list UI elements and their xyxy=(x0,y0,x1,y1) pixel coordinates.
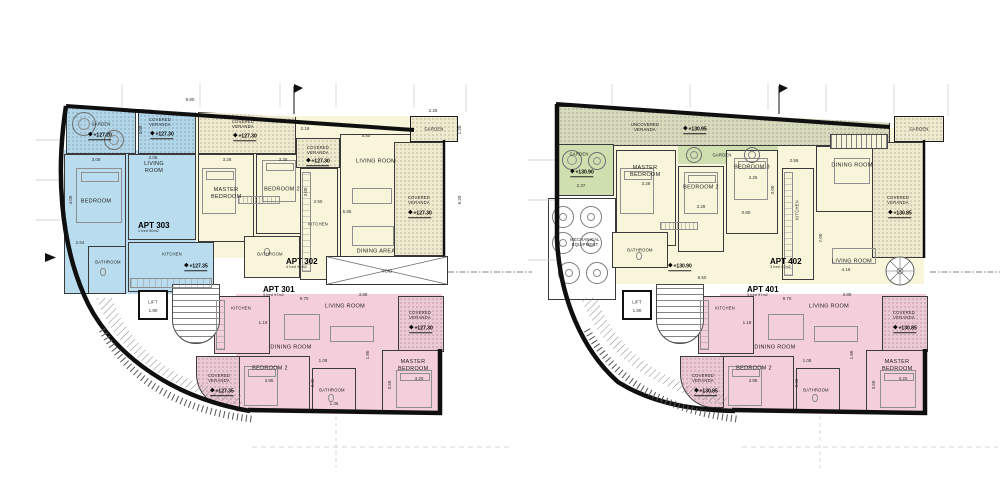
dimension-label: 1.80 xyxy=(633,309,642,314)
dining-table xyxy=(352,226,394,246)
apartment-label-303: APT 303 1 bed 50m2 xyxy=(138,222,170,234)
dimension-label: 1.80 xyxy=(366,351,371,360)
dining-table xyxy=(284,314,320,340)
level-marker-icon: ◆ xyxy=(694,389,698,395)
label-bathroom: BATHROOM xyxy=(319,387,344,392)
label-kitchen: KITCHEN xyxy=(715,305,735,310)
label-bathroom: BATHROOM xyxy=(257,251,282,256)
dimension-label: 3.25 xyxy=(279,158,288,163)
mechanical-unit-icon xyxy=(586,262,608,284)
label-covered-veranda: COVERED VERANDA xyxy=(884,195,912,206)
dimension-label: 9.70 xyxy=(300,297,309,302)
room-bathroom-blue xyxy=(88,246,126,294)
dimension-label: 1.18 xyxy=(259,321,268,326)
dimension-label: 9.80 xyxy=(186,98,195,103)
dimension-label: 3.08 xyxy=(92,158,101,163)
level-marker-icon: ◆ xyxy=(888,211,892,217)
level-marker-icon: ◆ xyxy=(88,133,92,139)
dimension-label: 3.20 xyxy=(415,377,424,382)
dimension-label: 3.85 xyxy=(265,379,274,384)
tree-icon xyxy=(744,147,760,163)
level-marker-icon: ◆ xyxy=(184,264,188,270)
room-covered-veranda-301-right xyxy=(398,296,444,352)
level-marker-icon: ◆ xyxy=(893,326,897,332)
level-marker-icon: ◆ xyxy=(408,211,412,217)
label-bedroom: BEDROOM xyxy=(81,199,112,206)
label-mechanical-equipment: MECHANICAL EQUIPMENT xyxy=(569,237,601,248)
level-marker-icon: ◆ xyxy=(233,134,237,140)
dimension-label: 3.45 xyxy=(795,379,800,388)
level-marker: ◆+130.85 xyxy=(888,210,911,218)
toilet xyxy=(100,268,106,276)
label-covered-veranda: COVERED VERANDA xyxy=(890,310,918,321)
label-kitchen: KITCHEN xyxy=(308,221,328,226)
dimension-label: 3.88 xyxy=(843,293,852,298)
label-dining-room: DINING ROOM xyxy=(831,163,872,170)
dimension-label: 2.18 xyxy=(301,127,310,132)
label-covered-veranda: COVERED VERANDA xyxy=(205,373,233,384)
apartment-label-401: APT 401 3 bed 97m2 xyxy=(747,286,779,298)
dimension-label: 7.00 xyxy=(819,234,824,243)
dimension-label: 5.85 xyxy=(343,210,352,215)
dimension-label: 0.80 xyxy=(742,211,751,216)
dimension-label: 6.20 xyxy=(458,196,463,205)
wardrobe xyxy=(660,222,698,230)
dimension-label: 8.50 xyxy=(698,276,707,281)
level-marker: ◆+130.85 xyxy=(694,388,717,396)
level-marker-icon: ◆ xyxy=(570,170,574,176)
lift xyxy=(622,290,652,320)
sofa xyxy=(352,188,392,204)
dimension-label: 3.00 xyxy=(771,186,776,195)
label-living-room: LIVING ROOM xyxy=(832,259,872,266)
label-garden: GARDEN xyxy=(424,126,443,131)
dimension-label: 1.20 xyxy=(458,126,463,135)
section-flag-icon xyxy=(294,84,303,114)
dimension-label: 1.80 xyxy=(149,309,158,314)
tree-icon xyxy=(588,152,606,170)
dimension-label: 3.45 xyxy=(311,379,316,388)
level-marker: ◆+130.90 xyxy=(668,263,691,271)
sofa xyxy=(330,326,374,342)
label-master-bedroom: MASTER BEDROOM xyxy=(630,165,660,179)
dimension-label: 3.88 xyxy=(359,293,368,298)
label-covered-veranda: COVERED VERANDA xyxy=(689,373,717,384)
dimension-label: 2.09 xyxy=(139,126,144,135)
level-marker-icon: ◆ xyxy=(210,389,214,395)
tree-icon xyxy=(686,147,702,163)
dimension-label: 2.64 xyxy=(76,241,85,246)
level-marker: ◆+127.30 xyxy=(408,210,431,218)
label-bedroom2: BEDROOM 2 xyxy=(264,187,300,194)
dimension-label: 2.37 xyxy=(577,184,586,189)
sofa xyxy=(814,326,858,342)
level-marker-icon: ◆ xyxy=(409,326,413,332)
label-master-bedroom: MASTER BEDROOM xyxy=(882,359,912,373)
label-bathroom: BATHROOM xyxy=(95,259,120,264)
level-marker-icon: ◆ xyxy=(150,132,154,138)
section-flag-icon xyxy=(779,84,788,114)
dimension-label: 3.85 xyxy=(749,379,758,384)
label-covered-veranda: COVERED VERANDA xyxy=(406,310,434,321)
label-living-room: LIVING ROOM xyxy=(809,304,849,311)
dimension-label: 5.80 xyxy=(362,134,371,139)
level-marker: ◆+130.95 xyxy=(683,126,706,134)
label-covered-veranda: COVERED VERANDA xyxy=(145,117,175,128)
label-bathroom: BATHROOM xyxy=(803,387,828,392)
level-marker: ◆+127.35 xyxy=(210,388,233,396)
toilet xyxy=(636,252,642,260)
level-marker: ◆+127.30 xyxy=(150,131,173,139)
apartment-label-402: APT 402 3 bed 92m2 xyxy=(770,258,802,270)
dimension-label: 1.18 xyxy=(743,321,752,326)
label-covered-veranda: COVERED VERANDA xyxy=(405,195,433,206)
level-marker: ◆+130.90 xyxy=(570,169,593,177)
staircase xyxy=(656,284,704,344)
label-lift: LIFT xyxy=(632,299,641,304)
label-living-room: LIVING ROOM xyxy=(325,304,365,311)
dimension-label: 1.36 xyxy=(330,402,339,407)
mechanical-unit-icon xyxy=(580,206,602,228)
label-dining-area: DINING AREA xyxy=(357,249,396,256)
room-covered-veranda-401-right xyxy=(882,296,928,352)
dimension-label: 3.28 xyxy=(642,182,651,187)
level-marker: ◆+130.85 xyxy=(893,325,916,333)
dimension-label: 3.50 xyxy=(872,381,877,390)
label-void: VOID xyxy=(381,268,392,273)
label-garden: GARDEN xyxy=(569,151,588,156)
label-kitchen: KITCHEN xyxy=(794,200,799,220)
dining-table xyxy=(768,314,804,340)
label-dining-room: DINING ROOM xyxy=(270,345,311,352)
label-garden: GARDEN xyxy=(712,152,731,157)
staircase xyxy=(172,284,220,344)
bed xyxy=(76,168,122,223)
label-bedroom3: BEDROOM 3 xyxy=(734,165,770,172)
level-arrow-icon xyxy=(45,253,56,262)
label-master-bedroom: MASTER BEDROOM xyxy=(211,187,241,201)
level-marker: ◆+127.20 xyxy=(88,132,111,140)
dimension-label: 3.20 xyxy=(899,377,908,382)
dimension-label: 3.50 xyxy=(388,381,393,390)
apartment-label-302: APT 302 3 bed 92m2 xyxy=(286,258,318,270)
dimension-label: 1.08 xyxy=(319,359,328,364)
dimension-label: 3.28 xyxy=(223,158,232,163)
apartment-label-301: APT 301 3 bed 97m2 xyxy=(263,286,295,298)
label-living-room: LIVING ROOM xyxy=(141,161,167,175)
label-kitchen: KITCHEN xyxy=(162,251,182,256)
toilet xyxy=(812,394,818,402)
level-marker: ◆+127.30 xyxy=(233,133,256,141)
dimension-label: 1.08 xyxy=(803,359,812,364)
dimension-label: 9.70 xyxy=(783,297,792,302)
label-bedroom2: BEDROOM 2 xyxy=(736,366,772,373)
level-marker-icon: ◆ xyxy=(683,127,687,133)
label-bedroom2: BEDROOM 2 xyxy=(683,185,719,192)
dimension-label: 2.50 xyxy=(314,200,323,205)
kitchen-counter xyxy=(130,278,212,288)
level-marker: ◆+127.30 xyxy=(409,325,432,333)
level-marker: ◆+127.30 xyxy=(306,158,329,166)
label-kitchen: KITCHEN xyxy=(231,305,251,310)
mechanical-unit-icon xyxy=(552,206,574,228)
dimension-label: 2.25 xyxy=(429,109,438,114)
label-garden: GARDEN xyxy=(91,121,110,126)
dimension-label: 1.80 xyxy=(850,351,855,360)
floor-plan-canvas: GARDEN ◆+127.20 COVERED VERANDA ◆+127.30… xyxy=(0,0,1000,500)
label-uncovered-veranda: UNCOVERED VERANDA xyxy=(623,122,667,133)
label-living-room: LIVING ROOM xyxy=(356,159,396,166)
label-covered-veranda: COVERED VERANDA xyxy=(226,119,260,130)
kitchen-counter xyxy=(700,300,709,350)
mechanical-unit-icon xyxy=(558,262,580,284)
dimension-label: 3.28 xyxy=(697,205,706,210)
dimension-label: 2.05 xyxy=(149,156,158,161)
label-lift: LIFT xyxy=(148,299,157,304)
dimension-label: 3.25 xyxy=(749,176,758,181)
dimension-label: 4.18 xyxy=(842,268,851,273)
kitchen-counter xyxy=(216,300,225,350)
level-marker-icon: ◆ xyxy=(668,264,672,270)
label-covered-veranda: COVERED VERANDA xyxy=(304,145,332,156)
steps-402 xyxy=(830,134,888,149)
dimension-label: 2.58 xyxy=(790,159,799,164)
level-marker-icon: ◆ xyxy=(306,159,310,165)
dimension-label: 4.00 xyxy=(69,196,74,205)
wardrobe xyxy=(238,196,280,204)
level-marker: ◆+127.35 xyxy=(184,263,207,271)
label-bedroom2: BEDROOM 2 xyxy=(252,366,288,373)
label-dining-room: DINING ROOM xyxy=(754,345,795,352)
label-garden: GARDEN xyxy=(909,126,928,131)
dimension-label: 3.00 xyxy=(304,188,309,197)
label-master-bedroom: MASTER BEDROOM xyxy=(398,359,428,373)
label-bathroom: BATHROOM xyxy=(627,247,652,252)
lift xyxy=(138,290,168,320)
